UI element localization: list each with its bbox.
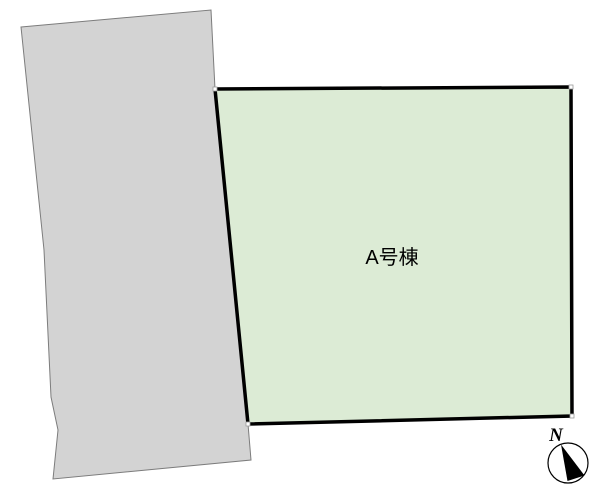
lot-a-label: A号棟	[365, 246, 418, 269]
lot-vertex-marker	[569, 85, 573, 89]
site-plan-drawing: A号棟 N	[0, 0, 600, 502]
compass-north-label: N	[548, 425, 564, 446]
lot-vertex-marker	[213, 87, 217, 91]
compass: N	[548, 425, 588, 483]
lot-vertex-marker	[570, 414, 574, 418]
lot-vertex-marker	[246, 422, 250, 426]
site-plan-canvas: A号棟 N	[0, 0, 600, 502]
road-parcel-shape	[21, 10, 251, 479]
